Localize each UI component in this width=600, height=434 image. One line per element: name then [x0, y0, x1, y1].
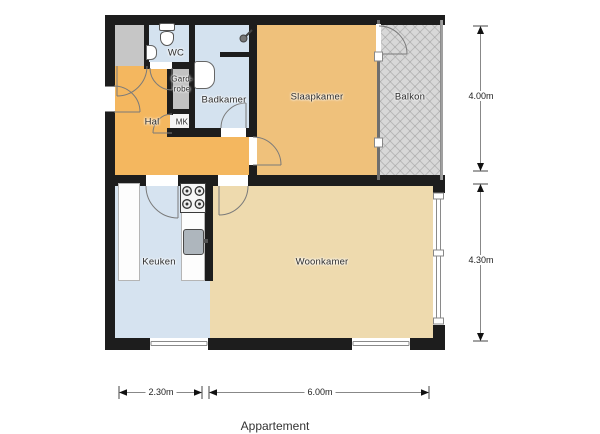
wall-top: [105, 15, 445, 25]
window-keuken: [150, 338, 208, 350]
dimension-right-bottom: 4.30m: [465, 255, 496, 265]
window-woonkamer-south: [352, 338, 410, 350]
label-keuken: Keuken: [142, 257, 175, 268]
stove-icon: [180, 183, 206, 213]
entrance-door-gap: [105, 86, 115, 112]
label-mk: MK: [176, 118, 188, 127]
label-slaapkamer: Slaapkamer: [291, 92, 344, 103]
label-garderobe-line1: Gard-: [171, 75, 192, 84]
bathroom-sink-icon: [194, 61, 215, 89]
badkamer-door-gap: [221, 128, 246, 137]
wall-keuken-woonkamer: [205, 175, 213, 281]
floorplan-canvas: Hal WC Gard- robe Badkamer MK Slaapkamer…: [0, 0, 600, 434]
dimension-bottom-right: 6.00m: [304, 387, 335, 397]
label-woonkamer: Woonkamer: [296, 257, 349, 268]
window-woonkamer-east: [433, 193, 445, 325]
label-hal: Hal: [145, 117, 160, 128]
kitchen-counter-left: [118, 183, 140, 281]
hal-woonkamer-door-gap: [218, 175, 248, 186]
label-badkamer: Badkamer: [202, 95, 247, 106]
balkon-railing-right: [440, 20, 443, 180]
wc-door-gap: [150, 62, 172, 69]
label-garderobe: Gard- robe: [171, 75, 192, 94]
slaapkamer-door-gap: [249, 137, 257, 165]
label-wc: WC: [168, 48, 184, 59]
closet-area: [110, 20, 147, 66]
label-garderobe-line2: robe: [174, 84, 191, 93]
wall-garderobe-mk: [167, 109, 195, 114]
balkon-door-gap: [376, 24, 381, 54]
keuken-door-gap: [146, 175, 178, 186]
label-balkon: Balkon: [395, 92, 425, 103]
kitchen-sink-icon: [183, 229, 204, 255]
wc-sink-icon: [146, 45, 157, 60]
dimension-bottom-left: 2.30m: [145, 387, 176, 397]
toilet-bowl-icon: [160, 31, 174, 46]
wall-shower-stub: [220, 52, 253, 57]
kitchen-sink-faucet: [203, 239, 208, 243]
toilet-tank-icon: [159, 23, 175, 31]
plan-title: Appartement: [241, 419, 310, 433]
dimension-right-top: 4.00m: [465, 91, 496, 101]
